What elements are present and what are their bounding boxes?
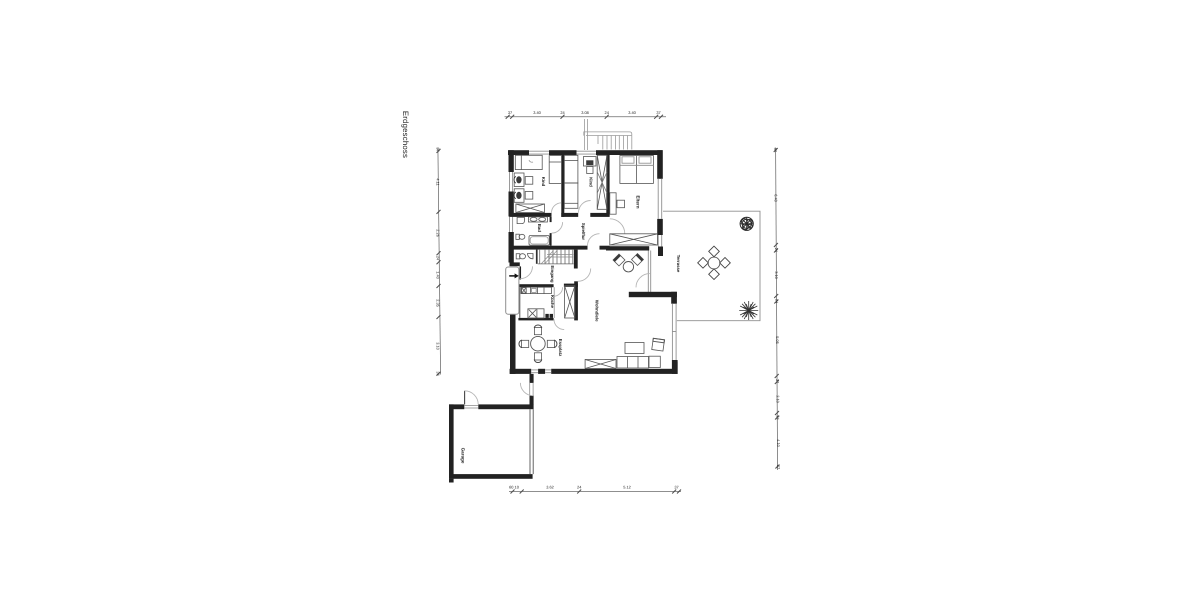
svg-text:3.10: 3.10	[436, 342, 441, 350]
svg-text:Kind: Kind	[588, 177, 593, 187]
svg-text:Kind: Kind	[541, 177, 546, 187]
svg-text:6.40: 6.40	[774, 194, 779, 202]
svg-text:2.26: 2.26	[436, 229, 441, 237]
svg-text:Essplatz: Essplatz	[558, 339, 563, 356]
svg-text:5.05: 5.05	[775, 336, 780, 344]
svg-text:37: 37	[436, 371, 441, 375]
svg-text:2.35: 2.35	[436, 299, 441, 307]
svg-text:37: 37	[656, 110, 660, 115]
svg-text:Garage: Garage	[461, 448, 466, 464]
svg-text:5.12: 5.12	[623, 485, 631, 490]
svg-text:2.10: 2.10	[775, 395, 780, 403]
svg-text:Eltern: Eltern	[635, 195, 640, 208]
svg-text:3.10: 3.10	[774, 271, 779, 279]
svg-text:3.40: 3.40	[533, 110, 541, 115]
svg-text:1.40: 1.40	[436, 271, 441, 279]
svg-text:Küche: Küche	[550, 295, 555, 309]
svg-text:Wohndiele: Wohndiele	[595, 300, 600, 322]
svg-text:4.10: 4.10	[776, 439, 781, 447]
svg-text:3.40: 3.40	[628, 110, 636, 115]
svg-text:37: 37	[775, 379, 780, 383]
svg-text:3.08: 3.08	[581, 110, 589, 115]
svg-text:37: 37	[674, 485, 678, 490]
svg-text:Terrasse: Terrasse	[676, 255, 681, 273]
svg-text:Bad: Bad	[537, 224, 542, 232]
svg-text:3.62: 3.62	[546, 485, 554, 490]
svg-text:60 10: 60 10	[509, 485, 520, 490]
svg-text:Eingang: Eingang	[550, 266, 555, 283]
svg-text:Spielflur: Spielflur	[581, 223, 586, 241]
svg-text:37: 37	[436, 147, 441, 151]
svg-text:4.11: 4.11	[436, 178, 441, 185]
svg-text:27: 27	[776, 465, 781, 469]
svg-text:Erdgeschoss: Erdgeschoss	[401, 111, 410, 158]
svg-text:37: 37	[773, 148, 778, 152]
svg-text:37: 37	[508, 110, 512, 115]
